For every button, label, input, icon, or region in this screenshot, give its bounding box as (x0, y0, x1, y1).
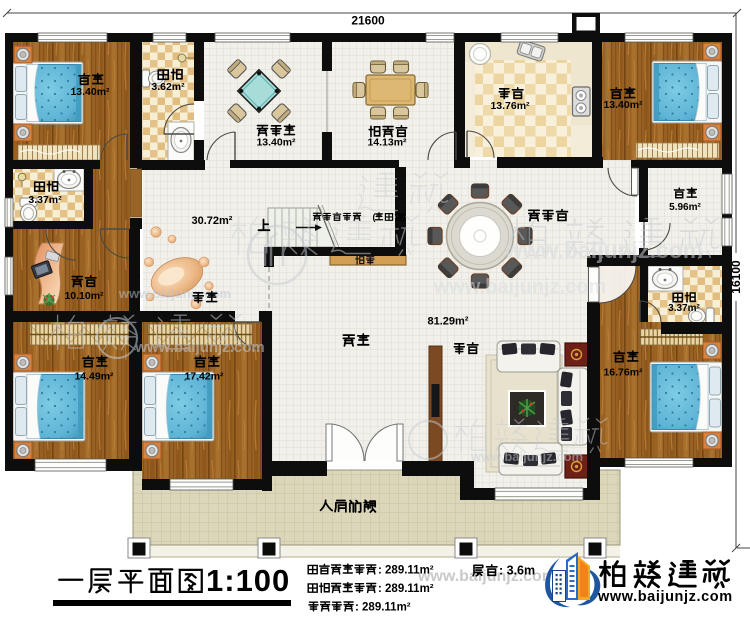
svg-text:13.40m²: 13.40m² (70, 86, 110, 98)
svg-text:www.baijunjz.com: www.baijunjz.com (597, 589, 733, 605)
svg-text:: 289.11m²: : 289.11m² (378, 565, 434, 577)
svg-text:14.49m²: 14.49m² (74, 371, 114, 383)
svg-text:3.62m²: 3.62m² (151, 81, 185, 93)
svg-text:14.13m²: 14.13m² (367, 137, 407, 149)
svg-text:5.96m²: 5.96m² (669, 202, 701, 213)
svg-text:1:100: 1:100 (206, 563, 290, 598)
svg-text:13.40m²: 13.40m² (256, 137, 296, 149)
svg-text:www.baijunjz.com: www.baijunjz.com (504, 237, 704, 263)
svg-text:13.76m²: 13.76m² (490, 100, 530, 112)
svg-text:13.40m²: 13.40m² (603, 99, 643, 111)
svg-text:81.29m²: 81.29m² (428, 316, 469, 328)
svg-text:: 289.11m²: : 289.11m² (378, 583, 434, 595)
svg-text:30.72m²: 30.72m² (192, 215, 233, 227)
svg-text:3.37m²: 3.37m² (668, 303, 700, 314)
svg-text:16.76m²: 16.76m² (603, 367, 643, 379)
svg-text:www.baijunjz.com: www.baijunjz.com (433, 276, 607, 298)
svg-text:10.10m²: 10.10m² (64, 290, 104, 302)
svg-text:: 289.11m²: : 289.11m² (355, 602, 411, 614)
svg-text:www.baijunjz.com: www.baijunjz.com (470, 449, 583, 464)
svg-text:: 3.6m: : 3.6m (499, 564, 535, 578)
svg-text:17.42m²: 17.42m² (184, 371, 224, 383)
svg-text:21600: 21600 (351, 14, 385, 28)
svg-text:3.37m²: 3.37m² (28, 194, 62, 206)
svg-text:www.baijunjz.com: www.baijunjz.com (134, 339, 264, 356)
svg-text:www.baijunjz.com: www.baijunjz.com (417, 568, 556, 585)
svg-text:): ) (403, 212, 406, 222)
